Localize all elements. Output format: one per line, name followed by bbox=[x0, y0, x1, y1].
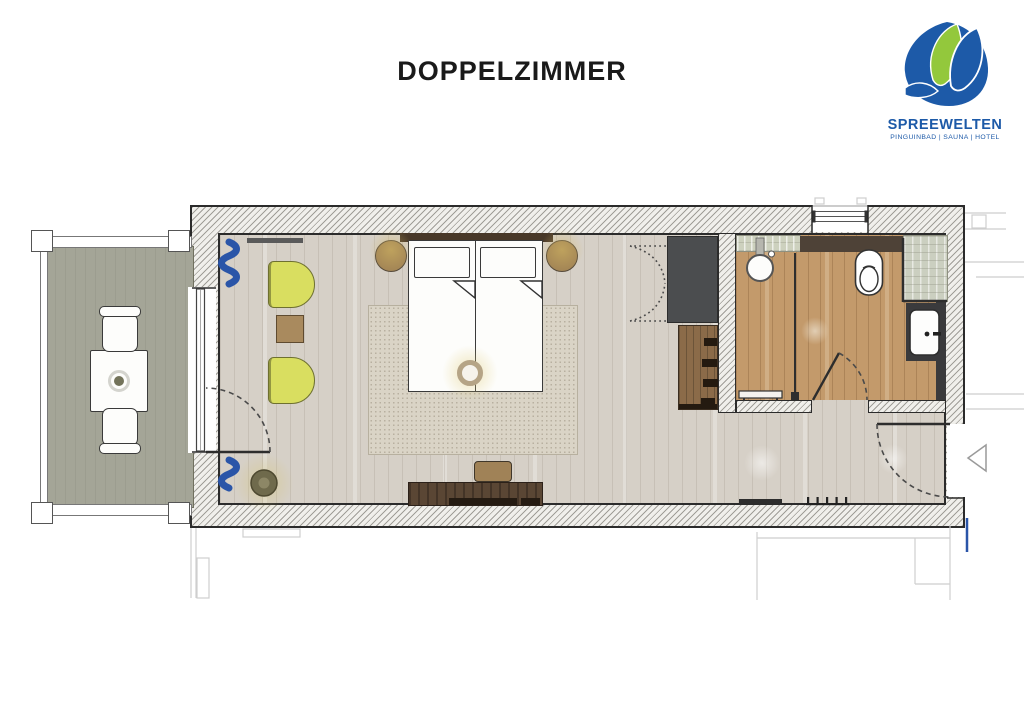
balcony-railing-left bbox=[40, 248, 48, 504]
side-table bbox=[276, 315, 304, 343]
shower-tiles bbox=[903, 235, 948, 302]
logo-penguin-icon bbox=[875, 18, 1015, 112]
curtain-rod bbox=[247, 238, 303, 243]
logo-tagline-text: PINGUINBAD | SAUNA | HOTEL bbox=[875, 134, 1015, 141]
logo-brand-text: SPREEWELTEN bbox=[875, 117, 1015, 133]
balcony-chair-top bbox=[99, 306, 141, 352]
balcony-post-bottom-left bbox=[31, 502, 53, 524]
balcony-chair-bottom bbox=[99, 408, 141, 454]
balcony-post-bottom-right bbox=[168, 502, 190, 524]
pillow-left bbox=[414, 247, 470, 278]
lounge-chair-bottom bbox=[268, 357, 315, 404]
lounge-chair-top bbox=[268, 261, 315, 308]
balcony-table bbox=[90, 350, 148, 412]
window-opening bbox=[812, 204, 868, 232]
pillow-right bbox=[480, 247, 536, 278]
bathroom-wall-ledge bbox=[800, 236, 904, 252]
stool bbox=[474, 461, 512, 482]
desk bbox=[408, 482, 543, 506]
balcony-post-top-left bbox=[31, 230, 53, 252]
nightstand-right bbox=[546, 240, 578, 272]
bathroom-wall-bottom-left bbox=[736, 400, 812, 413]
floorplan-page: DOPPELZIMMER SPREEWELTEN PINGUINBAD | SA… bbox=[0, 0, 1024, 720]
entrance-arrow bbox=[968, 445, 986, 471]
shelf-unit bbox=[678, 325, 718, 410]
bathroom-wall-bottom-right bbox=[868, 400, 946, 413]
bathroom-wall-left bbox=[718, 233, 736, 413]
balcony-door-opening bbox=[188, 287, 216, 453]
shower-tiled-wall bbox=[736, 235, 801, 252]
vanity-counter bbox=[906, 303, 942, 361]
logo: SPREEWELTEN PINGUINBAD | SAUNA | HOTEL bbox=[875, 18, 1015, 140]
page-title: DOPPELZIMMER bbox=[0, 56, 1024, 87]
nightstand-left bbox=[375, 240, 407, 272]
wardrobe bbox=[667, 236, 718, 323]
balcony-post-top-right bbox=[168, 230, 190, 252]
entry-door-opening bbox=[947, 424, 965, 497]
